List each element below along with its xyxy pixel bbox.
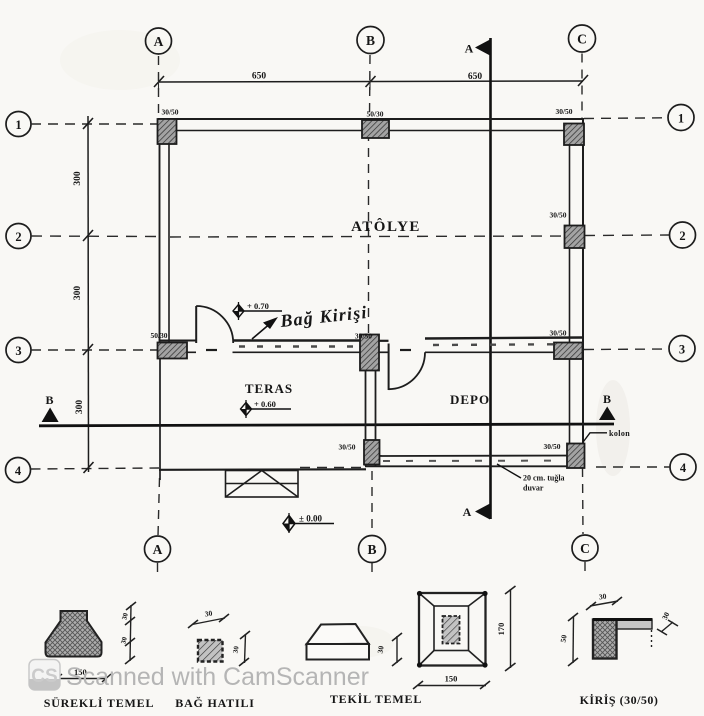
svg-text:2: 2 <box>679 229 685 243</box>
svg-text:A: A <box>465 42 474 56</box>
svg-text:B: B <box>366 33 375 48</box>
svg-text:C: C <box>580 541 590 556</box>
svg-text:3: 3 <box>15 344 21 358</box>
svg-text:20 cm. tuğla: 20 cm. tuğla <box>523 474 565 483</box>
svg-text:BAĞ HATILI: BAĞ HATILI <box>175 696 254 710</box>
svg-text:300: 300 <box>75 400 85 415</box>
svg-text:50/30: 50/30 <box>150 331 167 340</box>
svg-text:+ 0.70: + 0.70 <box>247 301 269 311</box>
svg-text:duvar: duvar <box>523 484 544 493</box>
svg-text:ATÔLYE: ATÔLYE <box>351 218 421 235</box>
svg-text:30/50: 30/50 <box>355 332 372 341</box>
svg-text:650: 650 <box>468 72 483 82</box>
svg-text:170: 170 <box>496 623 506 636</box>
svg-text:TERAS: TERAS <box>245 381 293 396</box>
svg-text:TEKİL TEMEL: TEKİL TEMEL <box>330 692 422 706</box>
svg-text:300: 300 <box>73 171 83 186</box>
svg-text:4: 4 <box>680 461 687 475</box>
svg-text:+ 0.60: + 0.60 <box>254 399 276 409</box>
svg-text:2: 2 <box>15 230 21 244</box>
svg-text:C: C <box>577 32 587 47</box>
svg-text:1: 1 <box>678 112 684 126</box>
svg-text:30: 30 <box>598 592 607 602</box>
svg-text:KİRİŞ (30/50): KİRİŞ (30/50) <box>580 693 659 707</box>
svg-text:300: 300 <box>73 286 83 301</box>
svg-text:4: 4 <box>15 464 22 478</box>
svg-text:30/50: 30/50 <box>549 329 566 338</box>
svg-text:Scanned with CamScanner: Scanned with CamScanner <box>66 663 369 691</box>
svg-text:A: A <box>154 34 164 49</box>
svg-text:50/30: 50/30 <box>366 110 383 119</box>
svg-text:DEPO: DEPO <box>450 392 490 407</box>
svg-text:30/50: 30/50 <box>338 443 355 452</box>
svg-text:30/50: 30/50 <box>543 442 560 451</box>
svg-text:30/50: 30/50 <box>161 108 178 117</box>
svg-text:A: A <box>463 505 472 519</box>
svg-text:650: 650 <box>252 72 267 82</box>
svg-text:B: B <box>603 392 611 406</box>
svg-text:1: 1 <box>15 118 21 132</box>
svg-text:3: 3 <box>679 343 685 357</box>
svg-text:B: B <box>367 542 376 557</box>
svg-text:A: A <box>153 542 163 557</box>
svg-text:30/50: 30/50 <box>549 211 566 220</box>
svg-text:SÜREKLİ TEMEL: SÜREKLİ TEMEL <box>44 696 155 710</box>
svg-text:CS: CS <box>31 666 57 687</box>
svg-text:kolon: kolon <box>609 429 630 438</box>
svg-text:B: B <box>45 393 53 407</box>
svg-text:150: 150 <box>445 674 458 684</box>
svg-text:30/50: 30/50 <box>555 107 572 116</box>
svg-text:± 0.00: ± 0.00 <box>299 514 322 524</box>
